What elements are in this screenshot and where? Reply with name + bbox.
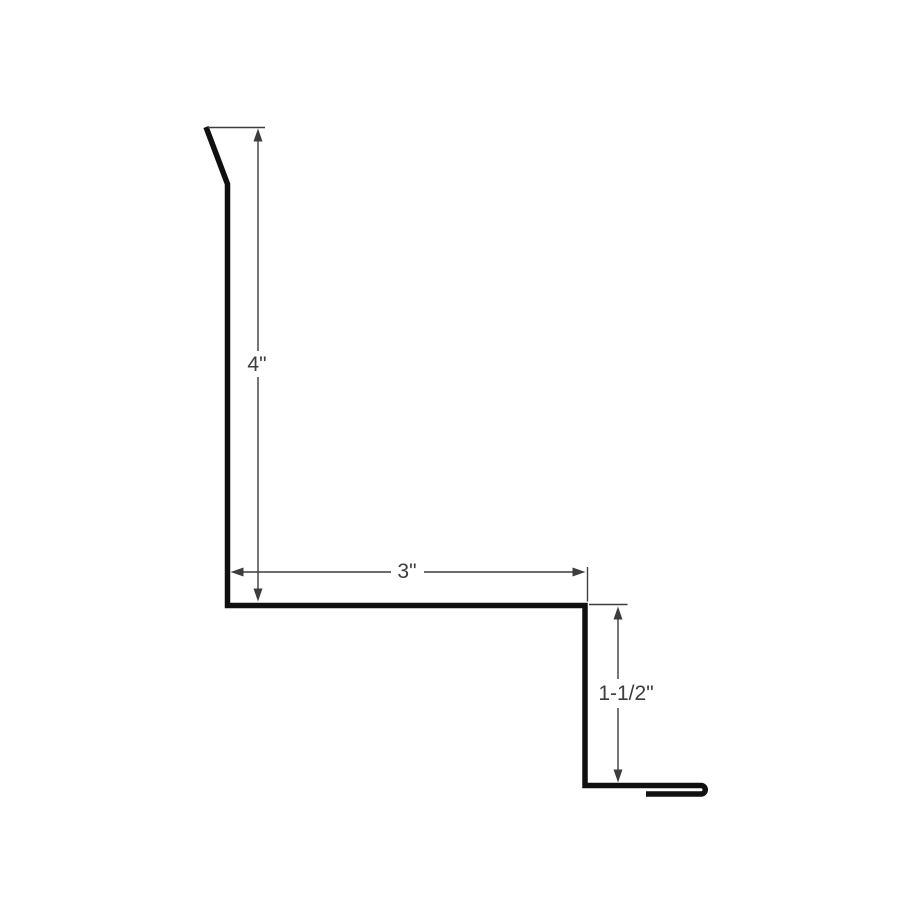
dimension-face-height: 4" (208, 128, 267, 602)
arrowhead-down-icon (254, 589, 263, 602)
arrowhead-up-icon (614, 607, 623, 620)
arrowhead-up-icon (254, 129, 263, 142)
dimension-label-top-run: 3" (397, 560, 416, 583)
arrowhead-left-icon (231, 568, 244, 577)
dimension-top-run: 3" (231, 560, 588, 602)
drawing-canvas: 4" 3" 1-1/2" (0, 0, 922, 923)
dimension-label-drop-leg: 1-1/2" (598, 682, 653, 705)
arrowhead-down-icon (614, 770, 623, 783)
dimension-label-face-height: 4" (247, 353, 266, 376)
arrowhead-right-icon (573, 568, 586, 577)
dimension-drop-leg: 1-1/2" (589, 605, 654, 783)
flashing-profile-diagram: 4" 3" 1-1/2" (0, 0, 922, 923)
